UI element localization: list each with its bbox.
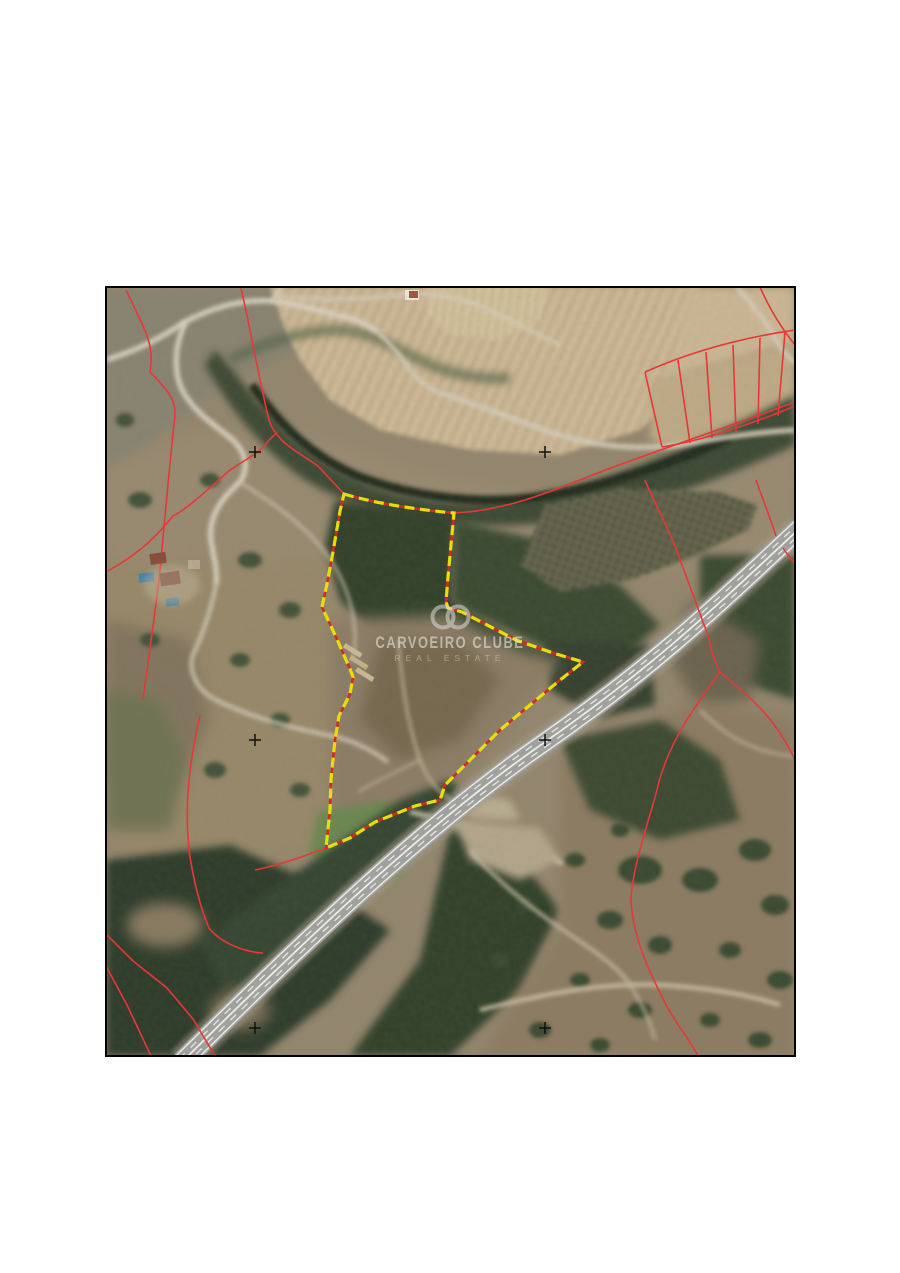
svg-text:REAL ESTATE: REAL ESTATE [394,653,505,663]
svg-text:CARVOEIRO CLUBE: CARVOEIRO CLUBE [376,635,525,653]
